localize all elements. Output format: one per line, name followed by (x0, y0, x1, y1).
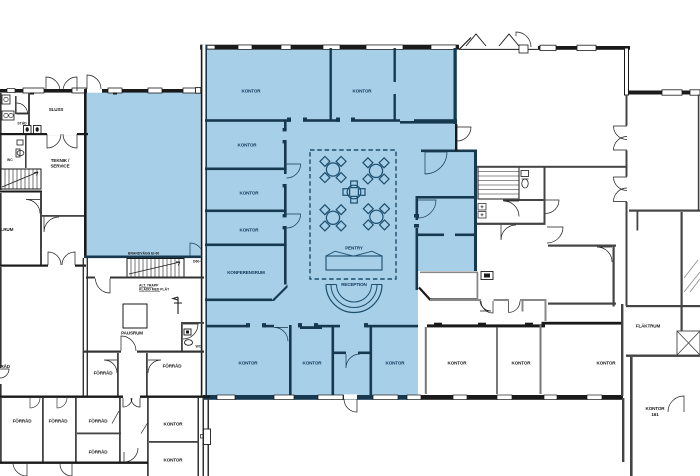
svg-text:SLUSS: SLUSS (49, 107, 64, 112)
svg-text:FÖRRÅD: FÖRRÅD (49, 418, 69, 424)
svg-text:161: 161 (651, 412, 659, 417)
svg-text:KONTOR: KONTOR (240, 228, 260, 233)
svg-text:KONTOR: KONTOR (242, 89, 262, 94)
svg-text:FÖRRÅD: FÖRRÅD (13, 418, 33, 424)
svg-text:FÖRRÅD: FÖRRÅD (89, 449, 109, 455)
svg-text:RECEPTION: RECEPTION (341, 282, 367, 287)
svg-text:KONTOR: KONTOR (353, 89, 373, 94)
svg-text:STÄD: STÄD (17, 122, 27, 126)
svg-text:KONTOR: KONTOR (646, 406, 666, 411)
svg-text:KONTOR: KONTOR (164, 422, 184, 427)
svg-text:FLÄKTRUM: FLÄKTRUM (636, 323, 661, 329)
svg-text:TEKNIK /: TEKNIK / (51, 158, 70, 163)
svg-text:KONTOR: KONTOR (303, 361, 323, 366)
svg-text:SERVICE: SERVICE (50, 164, 69, 169)
svg-text:KONTOR: KONTOR (386, 361, 406, 366)
svg-text:BRANDVÄGG EI-60: BRANDVÄGG EI-60 (128, 252, 159, 256)
svg-text:KONTOR: KONTOR (164, 458, 184, 463)
svg-text:FÖRRÅD: FÖRRÅD (163, 363, 183, 369)
svg-text:PENTRY: PENTRY (345, 246, 363, 251)
svg-text:WC: WC (7, 158, 13, 162)
svg-text:OLLRUM: OLLRUM (0, 227, 14, 232)
svg-text:KONTOR: KONTOR (512, 361, 532, 366)
svg-text:KONTOR: KONTOR (597, 361, 617, 366)
svg-text:KONTOR: KONTOR (448, 361, 468, 366)
svg-text:KONTOR: KONTOR (240, 191, 260, 196)
svg-text:RÅD: RÅD (1, 363, 11, 369)
svg-text:KONFERENSRUM: KONFERENSRUM (227, 270, 265, 275)
svg-text:KONTOR: KONTOR (239, 361, 259, 366)
svg-text:FÖRRÅD: FÖRRÅD (94, 370, 114, 376)
svg-text:WC: WC (196, 345, 202, 349)
svg-text:PAUSRUM: PAUSRUM (121, 331, 143, 336)
svg-text:FÖRRÅD: FÖRRÅD (89, 418, 109, 424)
svg-text:KONTOR: KONTOR (238, 143, 258, 148)
